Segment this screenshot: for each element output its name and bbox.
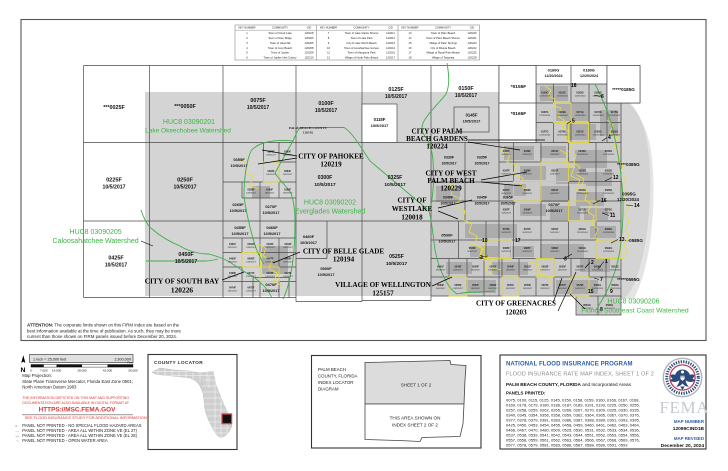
svg-text:COMMUNITY: COMMUNITY (354, 26, 370, 30)
svg-text:120228: 120228 (468, 55, 477, 59)
svg-text:0330F: 0330F (444, 156, 455, 160)
svg-text:Town of Lake Clarke Shores: Town of Lake Clarke Shores (345, 31, 379, 35)
svg-text:0555F: 0555F (559, 265, 567, 268)
svg-text:10/5/2017: 10/5/2017 (283, 193, 294, 195)
svg-text:120214: 120214 (386, 46, 395, 50)
svg-text:CID: CID (307, 26, 312, 30)
svg-text:15: 15 (588, 289, 594, 295)
svg-text:10/5/2017: 10/5/2017 (105, 263, 127, 269)
svg-text:Map Projection:: Map Projection: (22, 373, 52, 378)
svg-text:10/5/2017: 10/5/2017 (371, 123, 390, 128)
svg-text:SHEET 1 OF 2: SHEET 1 OF 2 (401, 383, 432, 388)
svg-text:0472F: 0472F (266, 272, 274, 275)
svg-text:10/5/2017: 10/5/2017 (523, 288, 534, 290)
svg-text:0363G: 0363G (578, 189, 586, 192)
svg-text:0365F: 0365F (503, 196, 514, 200)
svg-text:0557F: 0557F (576, 265, 584, 268)
svg-text:17: 17 (515, 238, 521, 244)
svg-text:10/5/2017: 10/5/2017 (558, 269, 569, 271)
svg-text:12/20/2024: 12/20/2024 (557, 96, 569, 98)
svg-text:120242: 120242 (468, 46, 477, 50)
svg-text:Everglades Watershed: Everglades Watershed (295, 208, 366, 215)
svg-text:17: 17 (409, 51, 412, 55)
svg-text:0180G: 0180G (583, 68, 595, 73)
svg-text:18: 18 (571, 83, 577, 89)
svg-text:VILLAGE OF WELLINGTON: VILLAGE OF WELLINGTON (335, 281, 432, 289)
svg-text:KEY NUMBER: KEY NUMBER (401, 26, 418, 30)
svg-text:10/5/2017: 10/5/2017 (246, 262, 257, 264)
svg-text:120205: 120205 (305, 41, 314, 45)
svg-text:120209: 120209 (305, 51, 314, 55)
svg-text:Town of Lake Park: Town of Lake Park (350, 36, 373, 40)
svg-text:HUC8 03090202: HUC8 03090202 (304, 200, 356, 207)
svg-text:120221: 120221 (468, 36, 477, 40)
svg-text:28,000: 28,000 (77, 369, 87, 373)
svg-text:Town of Jupiter: Town of Jupiter (271, 51, 289, 55)
svg-text:120208: 120208 (305, 46, 314, 50)
svg-text:13: 13 (409, 31, 412, 35)
svg-text:HUC8 03090205: HUC8 03090205 (70, 229, 122, 236)
svg-text:WESTLAKE: WESTLAKE (392, 205, 433, 213)
svg-text:12/20/2024: 12/20/2024 (575, 96, 587, 98)
svg-text:120192: 120192 (303, 131, 313, 135)
svg-text:10/5/2017: 10/5/2017 (263, 289, 280, 293)
svg-text:10/5/2017: 10/5/2017 (501, 154, 512, 156)
svg-text:***0050F: ***0050F (174, 104, 196, 110)
svg-text:120200: 120200 (305, 36, 314, 40)
svg-text:12/20/2024: 12/20/2024 (609, 115, 621, 117)
svg-text:10/5/2017: 10/5/2017 (522, 213, 533, 215)
svg-text:120220: 120220 (468, 31, 477, 35)
svg-text:KEY NUMBER: KEY NUMBER (238, 26, 255, 30)
svg-text:10/5/2017: 10/5/2017 (266, 155, 277, 157)
svg-text:0549F: 0549F (507, 265, 515, 268)
svg-text:56,000: 56,000 (128, 369, 138, 373)
svg-text:Town of Jupiter Inlet Colony: Town of Jupiter Inlet Colony (263, 55, 297, 59)
svg-text:11: 11 (610, 213, 616, 219)
svg-text:120108: 120108 (305, 31, 314, 35)
svg-text:··-: ··- (16, 439, 19, 443)
svg-text:0341F: 0341F (551, 150, 559, 153)
svg-text:0365G: 0365G (605, 189, 613, 192)
svg-text:1: 1 (605, 259, 608, 265)
svg-text:10/5/2017: 10/5/2017 (246, 247, 257, 249)
svg-text:Town of Mangonia Park: Town of Mangonia Park (347, 51, 376, 55)
svg-text:0581G: 0581G (594, 284, 602, 287)
svg-text:12/20/2024: 12/20/2024 (603, 251, 615, 253)
svg-text:DIAGRAM: DIAGRAM (318, 387, 339, 392)
svg-text:0125F: 0125F (388, 87, 404, 93)
svg-text:0571F: 0571F (507, 284, 515, 287)
svg-text:PANELS PRINTED:: PANELS PRINTED: (506, 391, 546, 396)
svg-text:10/5/2017: 10/5/2017 (471, 269, 482, 271)
svg-text:15: 15 (409, 41, 412, 45)
svg-text:12/20/2024: 12/20/2024 (577, 232, 589, 234)
svg-text:120216: 120216 (386, 51, 395, 55)
svg-text:0345G: 0345G (605, 150, 613, 153)
svg-text:12/20/2024: 12/20/2024 (592, 288, 604, 290)
svg-text:PANEL NOT PRINTED - OPEN WATER: PANEL NOT PRINTED - OPEN WATER AREA (22, 438, 108, 443)
svg-text:MAP NUMBER: MAP NUMBER (674, 419, 705, 424)
svg-text:0500F: 0500F (320, 266, 332, 271)
svg-text:0383G: 0383G (605, 228, 613, 231)
svg-text:0569F: 0569F (489, 284, 497, 287)
svg-text:0177G: 0177G (541, 131, 549, 134)
svg-text:12/20/2024: 12/20/2024 (593, 115, 605, 117)
svg-text:0465F: 0465F (229, 258, 237, 261)
svg-text:*0155F: *0155F (511, 84, 527, 90)
svg-text:10/5/2017: 10/5/2017 (385, 94, 407, 100)
svg-text:10/5/2017: 10/5/2017 (175, 259, 197, 265)
svg-text:125157: 125157 (372, 289, 394, 297)
svg-text:10/5/2017: 10/5/2017 (467, 251, 478, 253)
svg-text:10/5/2017: 10/5/2017 (550, 232, 561, 234)
svg-text:0466F: 0466F (247, 258, 255, 261)
svg-text:120203: 120203 (505, 309, 527, 317)
svg-text:best information available at: best information available at the time o… (27, 328, 182, 333)
svg-text:0173G: 0173G (594, 111, 602, 114)
svg-text:CITY OF SOUTH BAY: CITY OF SOUTH BAY (145, 277, 220, 286)
svg-text:10/5/2017: 10/5/2017 (453, 269, 464, 271)
svg-text:CITY OF BELLE GLADE: CITY OF BELLE GLADE (303, 248, 385, 256)
svg-text:10/5/2017: 10/5/2017 (265, 247, 276, 249)
svg-text:10/5/2017: 10/5/2017 (315, 108, 337, 114)
svg-text:0547F: 0547F (489, 265, 497, 268)
svg-text:10/5/2017: 10/5/2017 (232, 232, 249, 236)
svg-text:10/5/2017: 10/5/2017 (550, 173, 561, 175)
svg-text:***0025F: ***0025F (103, 105, 125, 111)
svg-text:PALM BEACH COUNTY: PALM BEACH COUNTY (289, 126, 328, 130)
svg-text:0337F: 0337F (503, 150, 511, 153)
svg-text:0579F: 0579F (576, 284, 584, 287)
svg-text:0159G: 0159G (541, 92, 549, 95)
svg-text:10/5/2017: 10/5/2017 (501, 251, 512, 253)
svg-text:12099CIND1B: 12099CIND1B (673, 426, 705, 432)
svg-text:10/5/2017: 10/5/2017 (550, 193, 561, 195)
svg-text:6: 6 (601, 94, 604, 100)
svg-text:10/5/2017: 10/5/2017 (283, 276, 294, 278)
svg-text:- -: - - (16, 429, 19, 433)
svg-text:FLOOD INSURANCE RATE MAP INDEX: FLOOD INSURANCE RATE MAP INDEX, SHEET 1 … (506, 372, 654, 378)
svg-text:120223: 120223 (468, 41, 477, 45)
svg-text:10/5/2017: 10/5/2017 (436, 288, 447, 290)
svg-text:120224: 120224 (426, 143, 448, 151)
svg-text:NATIONAL FLOOD INSURANCE PROGR: NATIONAL FLOOD INSURANCE PROGRAM (506, 362, 633, 368)
svg-text:*0165F: *0165F (511, 111, 527, 117)
svg-text:18: 18 (409, 55, 412, 59)
svg-text:0185G: 0185G (611, 131, 619, 134)
svg-text:10/5/2017: 10/5/2017 (264, 232, 281, 236)
svg-text:12/20/2024: 12/20/2024 (603, 154, 615, 156)
svg-text:4: 4 (608, 135, 611, 141)
svg-text:14: 14 (409, 36, 412, 40)
svg-text:0369F: 0369F (524, 209, 532, 212)
svg-text:0288F: 0288F (247, 189, 255, 192)
svg-text:7: 7 (600, 277, 603, 283)
svg-text:12/20/2024: 12/20/2024 (539, 115, 551, 117)
svg-text:0351F: 0351F (551, 169, 559, 172)
svg-text:0475F: 0475F (247, 287, 255, 290)
svg-text:3: 3 (480, 255, 483, 261)
svg-text:Village of Palm Springs: Village of Palm Springs (429, 41, 457, 45)
svg-text:12/20/2024: 12/20/2024 (577, 251, 589, 253)
svg-text:0575F: 0575F (541, 284, 549, 287)
svg-text:Town of Cloud Lake: Town of Cloud Lake (268, 31, 292, 35)
svg-text:0391G: 0391G (578, 247, 586, 250)
svg-text:0359F: 0359F (524, 189, 532, 192)
svg-text:12/20/2024: 12/20/2024 (577, 213, 589, 215)
svg-text:0179G: 0179G (558, 131, 566, 134)
svg-text:0167G: 0167G (541, 111, 549, 114)
svg-text:0370F: 0370F (548, 202, 560, 207)
svg-text:Town of Haverhill: Town of Haverhill (270, 41, 291, 45)
svg-text:City of Lake Worth Beach: City of Lake Worth Beach (346, 41, 377, 45)
svg-text:0450F: 0450F (178, 252, 194, 258)
svg-text:North American Datum 1983: North American Datum 1983 (22, 385, 77, 390)
svg-text:Town of Palm Beach: Town of Palm Beach (431, 31, 456, 35)
svg-text:HTTPS://MSC.FEMA.GOV: HTTPS://MSC.FEMA.GOV (39, 407, 116, 414)
svg-text:0379F: 0379F (551, 228, 559, 231)
svg-text:10/5/2017: 10/5/2017 (386, 261, 408, 267)
svg-text:DOCUMENTATION ARE ALSO AVAILAB: DOCUMENTATION ARE ALSO AVAILABLE IN DIGI… (22, 401, 130, 405)
svg-text:- - -0585G: - - -0585G (622, 238, 643, 243)
svg-text:0464F: 0464F (284, 243, 292, 246)
svg-text:0480F: 0480F (303, 234, 315, 239)
svg-text:INDEX LOCATOR: INDEX LOCATOR (318, 380, 353, 385)
svg-text:14,000: 14,000 (52, 369, 62, 373)
svg-text:0335F: 0335F (477, 156, 488, 160)
svg-text:10/5/2017: 10/5/2017 (173, 185, 196, 191)
svg-text:10/5/2017: 10/5/2017 (263, 211, 280, 215)
svg-text:0343G: 0343G (578, 150, 586, 153)
svg-text:12/20/2024: 12/20/2024 (539, 96, 551, 98)
svg-text:0075F: 0075F (250, 98, 266, 104)
svg-text:10/5/2017: 10/5/2017 (523, 269, 534, 271)
svg-text:KEY NUMBER: KEY NUMBER (320, 26, 337, 30)
svg-text:10/5/2017: 10/5/2017 (522, 251, 533, 253)
svg-text:COUNTY LOCATOR: COUNTY LOCATOR (154, 360, 203, 366)
svg-text:0300F: 0300F (318, 175, 333, 181)
svg-text:12/20/2024: 12/20/2024 (593, 135, 605, 137)
svg-text:Caloosahatchee Watershed: Caloosahatchee Watershed (53, 238, 139, 245)
svg-text:0357F: 0357F (503, 189, 511, 192)
svg-text:0375F: 0375F (503, 228, 511, 231)
svg-text:9: 9 (610, 289, 613, 295)
svg-text:0577F: 0577F (559, 284, 567, 287)
svg-text:10/5/2017: 10/5/2017 (463, 119, 482, 124)
svg-text:Lake Okeechobee Watershed: Lake Okeechobee Watershed (145, 128, 231, 135)
svg-text:12/20/2024: 12/20/2024 (577, 193, 589, 195)
svg-text:12/20/2024: 12/20/2024 (580, 74, 598, 78)
svg-text:PALM BEACH: PALM BEACH (318, 367, 346, 372)
svg-text:10/5/2017: 10/5/2017 (283, 247, 294, 249)
svg-text:10/5/2017: 10/5/2017 (558, 288, 569, 290)
svg-text:CITY OF GREENACRES: CITY OF GREENACRES (476, 300, 556, 308)
svg-text:12/20/2024: 12/20/2024 (557, 115, 569, 117)
svg-text:10/5/2017: 10/5/2017 (228, 247, 239, 249)
svg-text:10/5/2017: 10/5/2017 (283, 174, 294, 176)
svg-text:10/5/2017: 10/5/2017 (522, 173, 533, 175)
svg-text:0371G: 0371G (578, 209, 586, 212)
svg-text:10/5/2017: 10/5/2017 (506, 269, 517, 271)
svg-text:12/20/2024: 12/20/2024 (557, 135, 569, 137)
svg-text:HUC8 03090206: HUC8 03090206 (607, 299, 659, 306)
svg-text:0583G: 0583G (611, 284, 619, 287)
svg-text:MAP REVISED: MAP REVISED (674, 436, 704, 441)
svg-text:10/5/2017: 10/5/2017 (575, 288, 586, 290)
svg-text:0467F: 0467F (266, 258, 274, 261)
svg-text:0389F: 0389F (551, 247, 559, 250)
svg-text:10/5/2017: 10/5/2017 (384, 182, 406, 188)
svg-text:0284F: 0284F (284, 170, 292, 173)
svg-text:120018: 120018 (401, 214, 423, 222)
svg-text:0473F: 0473F (284, 272, 292, 275)
svg-text:Town of Glen Ridge: Town of Glen Ridge (268, 36, 292, 40)
svg-text:Town of Loxahatchee Groves: Town of Loxahatchee Groves (344, 46, 379, 50)
svg-text:FEMA: FEMA (660, 398, 710, 417)
svg-text:10/5/2017: 10/5/2017 (266, 174, 277, 176)
svg-text:0377F: 0377F (524, 228, 532, 231)
svg-text:0387F: 0387F (524, 247, 532, 250)
svg-text:1 inch = 25,000 feet: 1 inch = 25,000 feet (33, 358, 67, 362)
svg-text:0425F: 0425F (108, 256, 124, 262)
svg-text:120225: 120225 (468, 51, 477, 55)
svg-text:0115F: 0115F (374, 117, 386, 122)
svg-text:10/5/2017: 10/5/2017 (436, 269, 447, 271)
svg-text:0150F: 0150F (458, 86, 474, 92)
svg-text:0565F: 0565F (454, 284, 462, 287)
svg-text:10/5/2017: 10/5/2017 (488, 288, 499, 290)
svg-text:COUNTY, FLORIDA: COUNTY, FLORIDA (318, 374, 358, 379)
svg-text:0381G: 0381G (578, 228, 586, 231)
svg-text:0355G: 0355G (605, 169, 613, 172)
svg-text:10/5/2017: 10/5/2017 (474, 162, 489, 166)
svg-text:10/5/2017: 10/5/2017 (471, 288, 482, 290)
svg-text:0325F: 0325F (388, 175, 403, 181)
svg-text:0160G: 0160G (548, 68, 560, 73)
svg-text:CITY OF: CITY OF (397, 197, 426, 205)
svg-text:HUC8 03090201: HUC8 03090201 (163, 119, 215, 126)
svg-text:0533F: 0533F (469, 247, 477, 250)
svg-text:0462F: 0462F (247, 243, 255, 246)
svg-text:0355F: 0355F (233, 157, 245, 162)
svg-text:0175G: 0175G (611, 111, 619, 114)
svg-text:16: 16 (409, 46, 412, 50)
svg-text:14: 14 (634, 203, 640, 209)
svg-text:120213: 120213 (386, 41, 395, 45)
svg-text:ATTENTION: The corporate limit: ATTENTION: The corporate limits shown on… (27, 322, 180, 327)
svg-text:0250F: 0250F (177, 177, 193, 183)
svg-text:120210: 120210 (305, 55, 314, 59)
svg-text:0361F: 0361F (551, 189, 559, 192)
svg-text:7,000: 7,000 (40, 369, 48, 373)
svg-text:Feet: Feet (127, 361, 133, 365)
svg-text:12/20/2024: 12/20/2024 (577, 173, 589, 175)
svg-text:12/20/2024: 12/20/2024 (545, 74, 563, 78)
svg-text:10/5/2017: 10/5/2017 (440, 202, 455, 206)
svg-text:0163G: 0163G (576, 92, 584, 95)
svg-text:12: 12 (613, 175, 619, 181)
svg-text:0161G: 0161G (558, 92, 566, 95)
svg-text:42,000: 42,000 (103, 369, 113, 373)
svg-text:10/5/2017: 10/5/2017 (455, 93, 477, 99)
svg-text:COMMUNITY: COMMUNITY (272, 26, 288, 30)
svg-text:10/5/2017: 10/5/2017 (228, 291, 239, 293)
svg-text:0530F: 0530F (441, 233, 453, 238)
svg-text:10/5/2017: 10/5/2017 (506, 288, 517, 290)
svg-text:12/20/2024: 12/20/2024 (575, 115, 587, 117)
svg-text:State Plane Transverse Mercato: State Plane Transverse Mercator, Florida… (22, 379, 133, 384)
svg-text:2: 2 (591, 260, 594, 266)
svg-text:current than those shown on FI: current than those shown on FIRM panels … (27, 334, 177, 339)
svg-text:120226: 120226 (171, 286, 193, 295)
svg-text:12/20/2024: 12/20/2024 (575, 135, 587, 137)
svg-text:10/5/2017: 10/5/2017 (246, 193, 257, 195)
svg-text:0373G: 0373G (605, 209, 613, 212)
svg-text:CID: CID (388, 26, 393, 30)
svg-text:0270F: 0270F (265, 204, 277, 209)
svg-text:0551F: 0551F (524, 265, 532, 268)
svg-text:11: 11 (327, 51, 330, 55)
svg-text:0225F: 0225F (106, 177, 122, 183)
svg-text:10/5/2017: 10/5/2017 (550, 154, 561, 156)
svg-text:10: 10 (482, 238, 488, 244)
svg-text:0280F: 0280F (284, 151, 292, 154)
svg-text:10/5/2017: 10/5/2017 (546, 209, 563, 213)
svg-text:City of Riviera Beach: City of Riviera Beach (430, 46, 456, 50)
svg-text:12/20/2024: 12/20/2024 (617, 197, 640, 202)
svg-text:10/5/2017: 10/5/2017 (439, 240, 456, 244)
svg-text:CITY OF PAHOKEE: CITY OF PAHOKEE (298, 153, 364, 161)
svg-text:12/20/2024: 12/20/2024 (592, 269, 604, 271)
svg-text:THIS AREA SHOWN ON: THIS AREA SHOWN ON (390, 416, 441, 421)
svg-text:PALM BEACH COUNTY, FLORIDA and: PALM BEACH COUNTY, FLORIDA and Incorpora… (506, 382, 632, 387)
svg-text:16: 16 (601, 198, 607, 204)
svg-text:10/5/2017: 10/5/2017 (283, 262, 294, 264)
svg-text:120219: 120219 (320, 161, 342, 169)
svg-text:12/20/2024: 12/20/2024 (603, 232, 615, 234)
svg-text:0393G: 0393G (605, 247, 613, 250)
svg-text:10/5/2017: 10/5/2017 (540, 269, 551, 271)
svg-text:120212: 120212 (386, 36, 395, 40)
svg-text:12/20/2024: 12/20/2024 (539, 135, 551, 137)
svg-text:0265F: 0265F (232, 202, 244, 207)
svg-text:0461F: 0461F (229, 243, 237, 246)
svg-text:12/20/2024: 12/20/2024 (577, 154, 589, 156)
svg-text:0553F: 0553F (541, 265, 549, 268)
svg-text:120194: 120194 (333, 256, 355, 264)
svg-text:0290F: 0290F (266, 189, 274, 192)
svg-text:10/5/2017: 10/5/2017 (540, 288, 551, 290)
svg-text:0460F: 0460F (266, 225, 278, 230)
svg-text:5: 5 (572, 119, 575, 125)
svg-text:10/5/2017: 10/5/2017 (247, 105, 269, 111)
svg-text:10/5/2017: 10/5/2017 (474, 202, 489, 206)
svg-text:*****0185G: *****0185G (612, 87, 635, 92)
svg-text:12/20/2024: 12/20/2024 (609, 135, 621, 137)
svg-text:10/5/2017: 10/5/2017 (522, 232, 533, 234)
svg-text:0339F: 0339F (524, 150, 532, 153)
svg-text:0345F: 0345F (477, 196, 488, 200)
svg-text:10/5/2017: 10/5/2017 (318, 273, 335, 277)
svg-text:10: 10 (327, 46, 330, 50)
svg-text:10/5/2017: 10/5/2017 (501, 213, 512, 215)
svg-text:0100F: 0100F (318, 101, 334, 107)
svg-text:10/5/2017: 10/5/2017 (246, 276, 257, 278)
svg-text:120229: 120229 (440, 185, 462, 193)
svg-text:0469F: 0469F (229, 272, 237, 275)
svg-text:10/5/2017: 10/5/2017 (246, 291, 257, 293)
